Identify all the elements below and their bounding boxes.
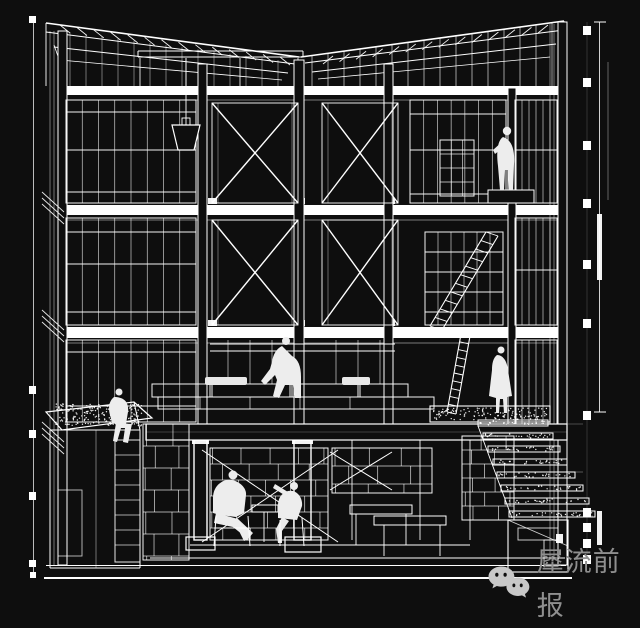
columns [50, 22, 567, 565]
butterfly-roof [46, 21, 564, 86]
edge-marks-left [29, 16, 36, 578]
dimension-line [594, 22, 608, 545]
floor-beams [60, 86, 567, 343]
figure-seated-right-legs [276, 517, 289, 543]
architectural-section-drawing [0, 0, 640, 599]
figure-seated-right [278, 491, 302, 520]
figure-seated-left-legs [214, 513, 253, 541]
figure-seated-left [213, 480, 246, 517]
wechat-icon [483, 561, 533, 607]
watermark-text: 犀流前报 [537, 540, 640, 628]
wechat-watermark: 犀流前报 [483, 540, 640, 628]
edge-marks-right [583, 22, 591, 564]
window-grids [66, 100, 557, 424]
section-line-art [0, 0, 640, 599]
figure-sitting-planter [109, 397, 128, 424]
